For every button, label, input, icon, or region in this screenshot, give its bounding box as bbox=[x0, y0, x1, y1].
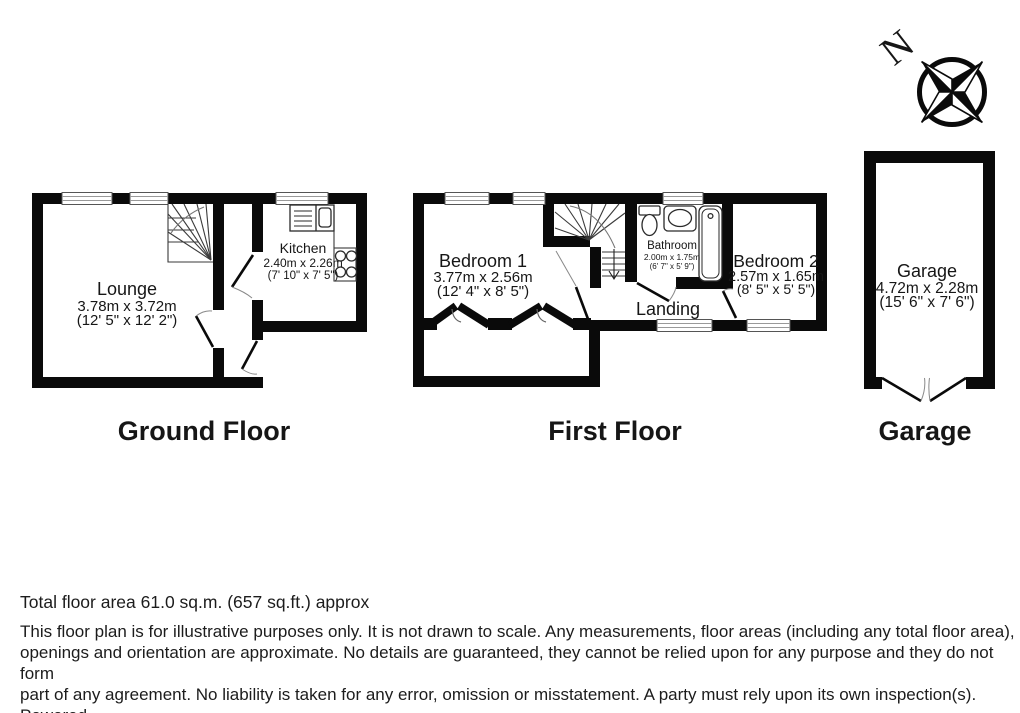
garage-door-opening bbox=[882, 376, 966, 390]
disclaimer-line: This floor plan is for illustrative purp… bbox=[20, 621, 1020, 642]
room-name: Bedroom 2 bbox=[733, 251, 819, 271]
kitchen-door-swing bbox=[232, 255, 253, 287]
total-floor-area: Total floor area 61.0 sq.m. (657 sq.ft.)… bbox=[20, 592, 369, 613]
lounge-hall-wall bbox=[213, 204, 224, 310]
room-name: Lounge bbox=[97, 279, 157, 299]
compass-star bbox=[922, 62, 983, 123]
floorplan-page: N bbox=[0, 0, 1020, 713]
garage-plan: Garage 4.72m x 2.28m (15' 6" x 7' 6") Ga… bbox=[864, 151, 995, 446]
room-dim-metric: 2.00m x 1.75m bbox=[644, 252, 700, 262]
window bbox=[663, 193, 703, 205]
stairwell-wall-right bbox=[590, 247, 601, 288]
disclaimer-line: openings and orientation are approximate… bbox=[20, 642, 1020, 684]
room-name: Bedroom 1 bbox=[439, 251, 527, 271]
disclaimer-line: part of any agreement. No liability is t… bbox=[20, 684, 1020, 713]
kitchen-door-arc bbox=[232, 287, 252, 298]
room-dim-imperial: (7' 10" x 7' 5") bbox=[268, 270, 339, 282]
window bbox=[445, 193, 489, 205]
room-dim-metric: 2.40m x 2.26m bbox=[263, 256, 342, 270]
sink-basin-icon bbox=[319, 208, 331, 227]
ground-floor-title: Ground Floor bbox=[118, 416, 291, 446]
bedroom2-door-swing bbox=[723, 291, 736, 318]
bathroom-label: Bathroom 2.00m x 1.75m (6' 7" x 5' 9") bbox=[644, 240, 700, 271]
compass-rose: N bbox=[872, 21, 985, 125]
lounge-hall-wall-lower bbox=[213, 348, 224, 377]
ground-floor-plan: Lounge 3.78m x 3.72m (12' 5" x 12' 2") K… bbox=[32, 193, 367, 447]
room-dim-imperial: (12' 5" x 12' 2") bbox=[77, 312, 178, 329]
first-floor-title: First Floor bbox=[548, 416, 682, 446]
window bbox=[276, 193, 328, 205]
ground-doors bbox=[196, 255, 257, 374]
kitchen-wall-lower bbox=[252, 300, 263, 321]
room-dim-imperial: (12' 4" x 8' 5") bbox=[437, 283, 529, 300]
bedroom2-door-arc bbox=[723, 289, 733, 291]
room-name: Bathroom bbox=[647, 240, 697, 252]
room-dim-imperial: (8' 5" x 5' 5") bbox=[737, 281, 815, 297]
window bbox=[62, 193, 112, 205]
lounge-label: Lounge 3.78m x 3.72m (12' 5" x 12' 2") bbox=[77, 279, 178, 329]
bedroom1-door-swing bbox=[576, 287, 588, 319]
north-label: N bbox=[872, 21, 922, 74]
first-floor-plan: Bedroom 1 3.77m x 2.56m (12' 4" x 8' 5")… bbox=[413, 193, 827, 447]
bedroom1-label: Bedroom 1 3.77m x 2.56m (12' 4" x 8' 5") bbox=[433, 251, 532, 300]
window bbox=[513, 193, 545, 205]
garage-title: Garage bbox=[878, 416, 971, 446]
toilet-icon bbox=[639, 206, 660, 236]
kitchen-wall-upper bbox=[252, 204, 263, 252]
window bbox=[130, 193, 168, 205]
room-name: Kitchen bbox=[280, 240, 327, 256]
room-dim-imperial: (6' 7" x 5' 9") bbox=[650, 262, 695, 271]
bathtub-icon bbox=[699, 206, 722, 281]
front-door-opening bbox=[251, 340, 264, 377]
window bbox=[747, 320, 790, 332]
window bbox=[657, 320, 712, 332]
kitchen-label: Kitchen 2.40m x 2.26m (7' 10" x 7' 5") bbox=[263, 240, 342, 282]
bedroom1-door-arc bbox=[556, 251, 576, 286]
room-name: Garage bbox=[897, 261, 957, 281]
lounge-door-swing bbox=[196, 316, 213, 347]
room-dim-imperial: (15' 6" x 7' 6") bbox=[879, 294, 974, 311]
bedroom2-label: Bedroom 2 2.57m x 1.65m (8' 5" x 5' 5") bbox=[728, 251, 824, 297]
disclaimer-text: This floor plan is for illustrative purp… bbox=[20, 621, 1020, 713]
lounge-door-arc bbox=[196, 311, 212, 316]
sink-icon bbox=[664, 206, 696, 231]
garage-room-label: Garage 4.72m x 2.28m (15' 6" x 7' 6") bbox=[876, 261, 979, 311]
dormer-wall bbox=[424, 306, 591, 330]
landing-label: Landing bbox=[636, 299, 700, 319]
ground-staircase bbox=[168, 204, 213, 262]
bathroom-wall-left bbox=[625, 204, 637, 282]
